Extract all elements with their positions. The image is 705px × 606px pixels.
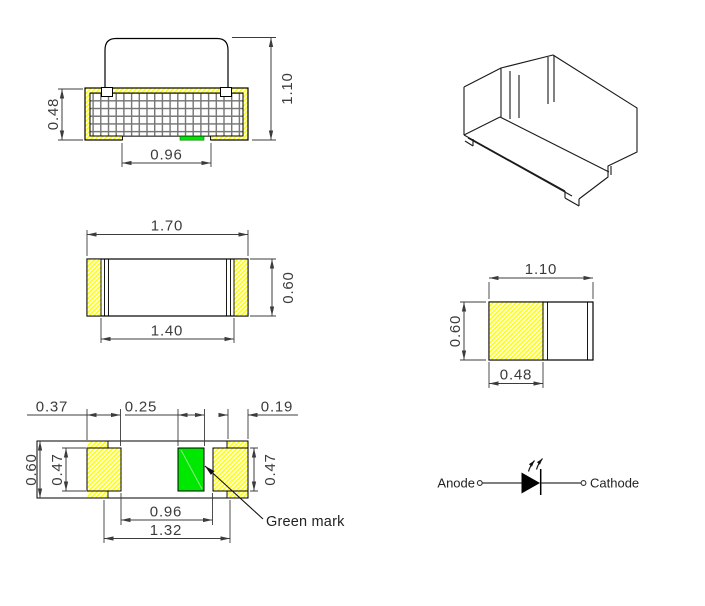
dim-front-bottom-width-text: 0.96 bbox=[150, 147, 182, 164]
dim-top-inner-width-text: 1.40 bbox=[151, 323, 183, 340]
diode-triangle bbox=[522, 473, 541, 494]
cathode-label: Cathode bbox=[590, 476, 639, 491]
top-view: 1.70 0.60 1.40 bbox=[87, 218, 297, 344]
dim-side-height-text: 0.60 bbox=[447, 315, 464, 347]
dimension-side-height: 0.60 bbox=[447, 302, 486, 360]
dim-front-total-height-text: 1.10 bbox=[279, 72, 296, 104]
lead-tab-left bbox=[102, 88, 113, 97]
cathode-terminal-circle bbox=[581, 481, 586, 486]
green-mark-front bbox=[180, 136, 204, 140]
dim-bottom-depth-text: 0.60 bbox=[23, 453, 40, 485]
dimension-side-terminal-width: 0.48 bbox=[489, 362, 543, 388]
lead-tab-right bbox=[221, 88, 232, 97]
dim-bottom-edge-margin-text: 0.19 bbox=[261, 399, 293, 416]
dimension-bottom-green-mark-width: 0.25 bbox=[125, 399, 205, 447]
dimension-side-total-width: 1.10 bbox=[489, 261, 593, 299]
dim-bottom-green-mark-width-text: 0.25 bbox=[125, 399, 157, 416]
top-pad-left bbox=[87, 259, 101, 316]
iso-detail-edges bbox=[465, 138, 611, 196]
dim-top-total-width-text: 1.70 bbox=[151, 218, 183, 235]
dimension-bottom-pad-depth-right: 0.47 bbox=[250, 448, 279, 491]
dim-bottom-pad-width-text: 0.37 bbox=[36, 399, 68, 416]
dimension-bottom-edge-margin: 0.19 bbox=[219, 399, 298, 440]
dimension-front-bottom-width: 0.96 bbox=[122, 143, 211, 167]
anode-label: Anode bbox=[437, 476, 475, 491]
dimension-top-total-width: 1.70 bbox=[87, 218, 248, 257]
green-mark-label: Green mark bbox=[266, 514, 345, 530]
bottom-pad-left bbox=[87, 448, 121, 491]
package-outline-drawing: 0.48 1.10 0.96 1.70 bbox=[0, 0, 705, 606]
dim-side-terminal-width-text: 0.48 bbox=[500, 367, 532, 384]
lens-body bbox=[105, 39, 228, 91]
dimension-front-base-height: 0.48 bbox=[45, 89, 83, 140]
isometric-view bbox=[464, 55, 637, 206]
bottom-pad-right bbox=[213, 448, 248, 491]
dim-bottom-pad-depth-right-text: 0.47 bbox=[262, 453, 279, 485]
bottom-view: 0.37 0.25 0.19 0.60 0.47 0.47 bbox=[23, 399, 345, 544]
dim-side-total-width-text: 1.10 bbox=[525, 261, 557, 278]
iso-silhouette bbox=[464, 55, 637, 206]
dimension-bottom-pad-width: 0.37 bbox=[27, 399, 121, 447]
dim-front-base-height-text: 0.48 bbox=[45, 98, 62, 130]
dim-bottom-inner-span-text: 0.96 bbox=[150, 504, 182, 521]
dim-top-depth-text: 0.60 bbox=[280, 271, 297, 303]
led-symbol: Anode Cathode bbox=[437, 459, 639, 496]
dim-bottom-pad-depth-left-text: 0.47 bbox=[49, 453, 66, 485]
dimension-top-depth: 0.60 bbox=[250, 259, 297, 316]
front-view: 0.48 1.10 0.96 bbox=[45, 38, 296, 168]
technical-drawing-canvas: 0.48 1.10 0.96 1.70 bbox=[0, 0, 705, 606]
top-body-outline bbox=[87, 259, 248, 316]
top-pad-right bbox=[234, 259, 248, 316]
dimension-top-inner-width: 1.40 bbox=[101, 318, 234, 343]
base-grid-area bbox=[90, 93, 243, 136]
side-view: 1.10 0.60 0.48 bbox=[447, 261, 593, 388]
dim-bottom-pad-span-text: 1.32 bbox=[150, 522, 182, 539]
anode-terminal-circle bbox=[477, 481, 482, 486]
side-terminal-hatch bbox=[489, 302, 543, 360]
